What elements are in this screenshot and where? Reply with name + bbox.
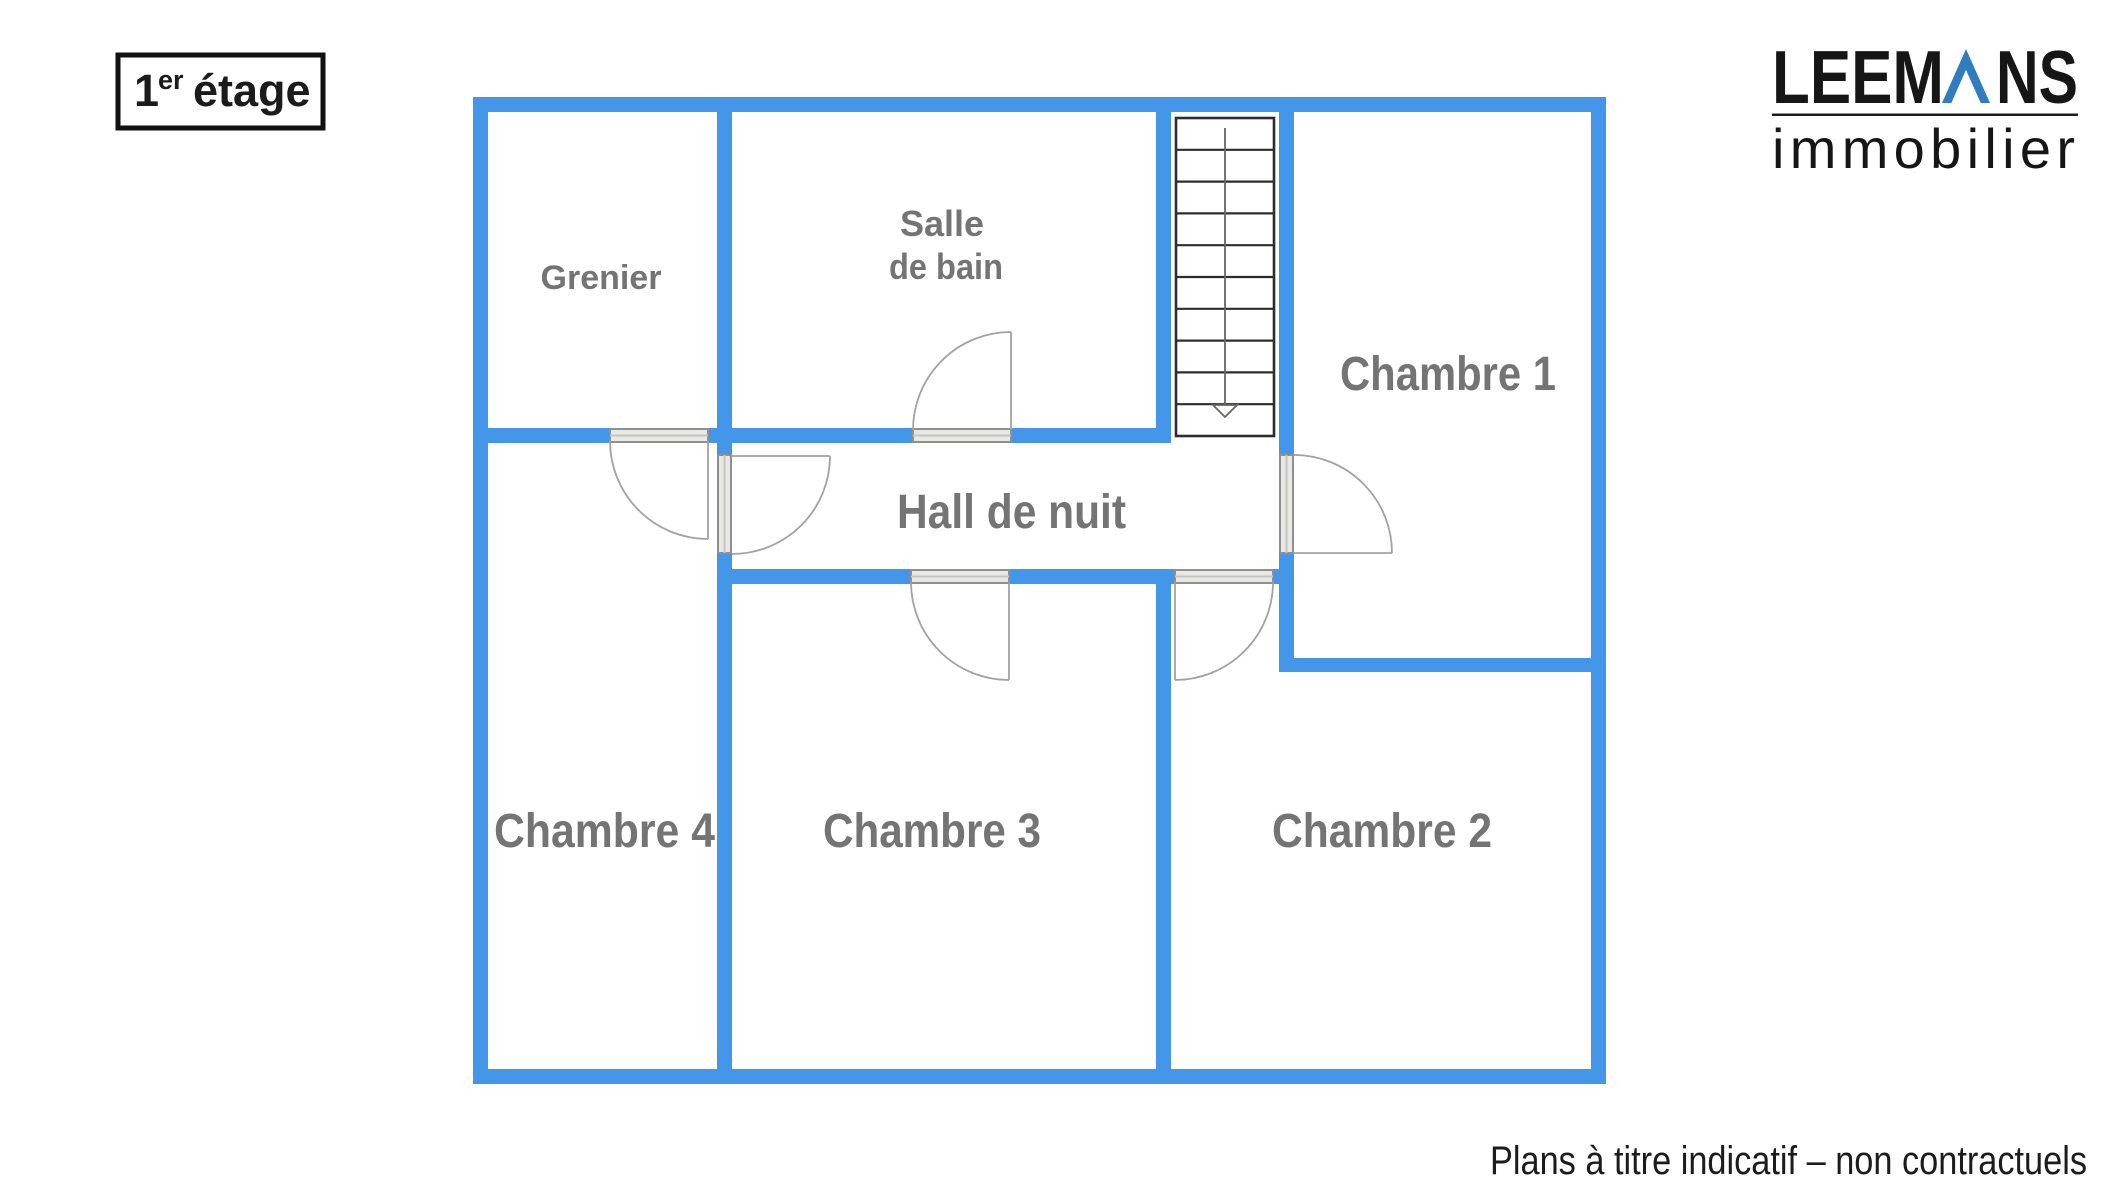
svg-text:Chambre 4: Chambre 4 bbox=[494, 805, 715, 858]
svg-text:Chambre 3: Chambre 3 bbox=[823, 805, 1041, 858]
svg-text:Plans à titre indicatif – non: Plans à titre indicatif – non contractue… bbox=[1490, 1139, 2087, 1183]
svg-text:Chambre 1: Chambre 1 bbox=[1340, 348, 1556, 401]
svg-text:Hall de nuit: Hall de nuit bbox=[897, 486, 1126, 539]
svg-text:étage: étage bbox=[193, 65, 311, 116]
svg-text:immobilier: immobilier bbox=[1772, 117, 2075, 180]
svg-text:NS: NS bbox=[1996, 35, 2078, 119]
svg-text:er: er bbox=[158, 65, 184, 95]
svg-text:1: 1 bbox=[134, 65, 159, 116]
svg-text:Grenier: Grenier bbox=[541, 259, 662, 297]
svg-text:Chambre 2: Chambre 2 bbox=[1272, 805, 1492, 858]
svg-text:LEEM: LEEM bbox=[1772, 35, 1944, 119]
svg-text:Salle: Salle bbox=[900, 203, 984, 244]
svg-text:de bain: de bain bbox=[889, 246, 1003, 287]
